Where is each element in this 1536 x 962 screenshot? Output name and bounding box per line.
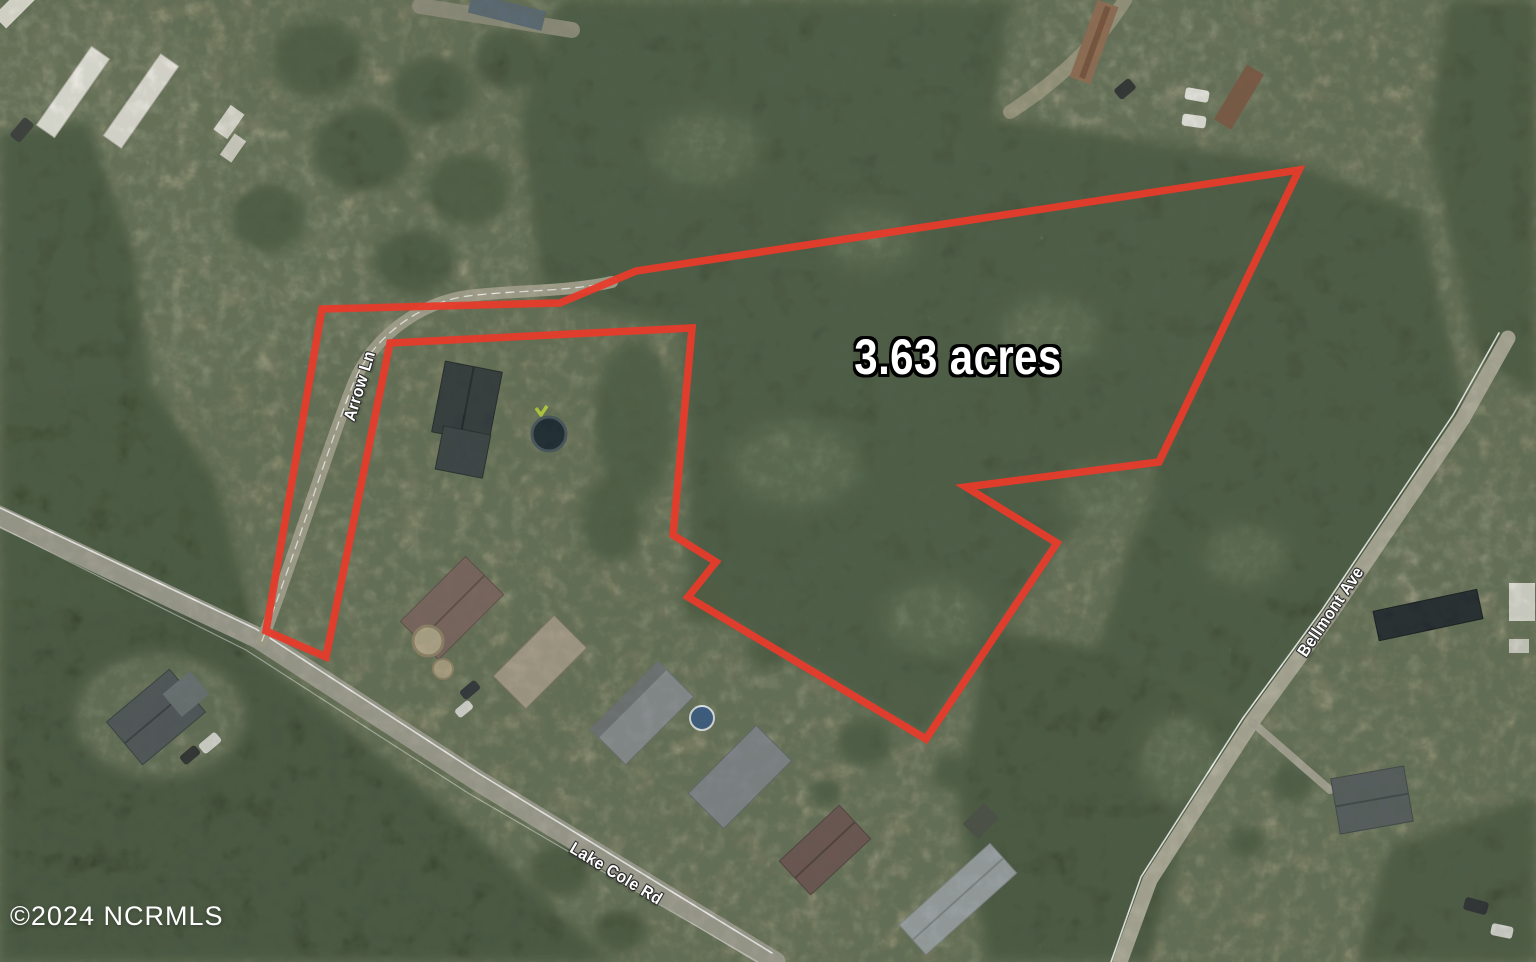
aerial-property-map: 3.63 acres Arrow Ln Lake Cole Rd Bellmon… xyxy=(0,0,1536,962)
mls-watermark: ©2024 NCRMLS xyxy=(10,901,223,932)
grain-overlay xyxy=(0,0,1536,962)
aerial-photo xyxy=(0,0,1536,962)
area-label: 3.63 acres xyxy=(854,332,1061,382)
